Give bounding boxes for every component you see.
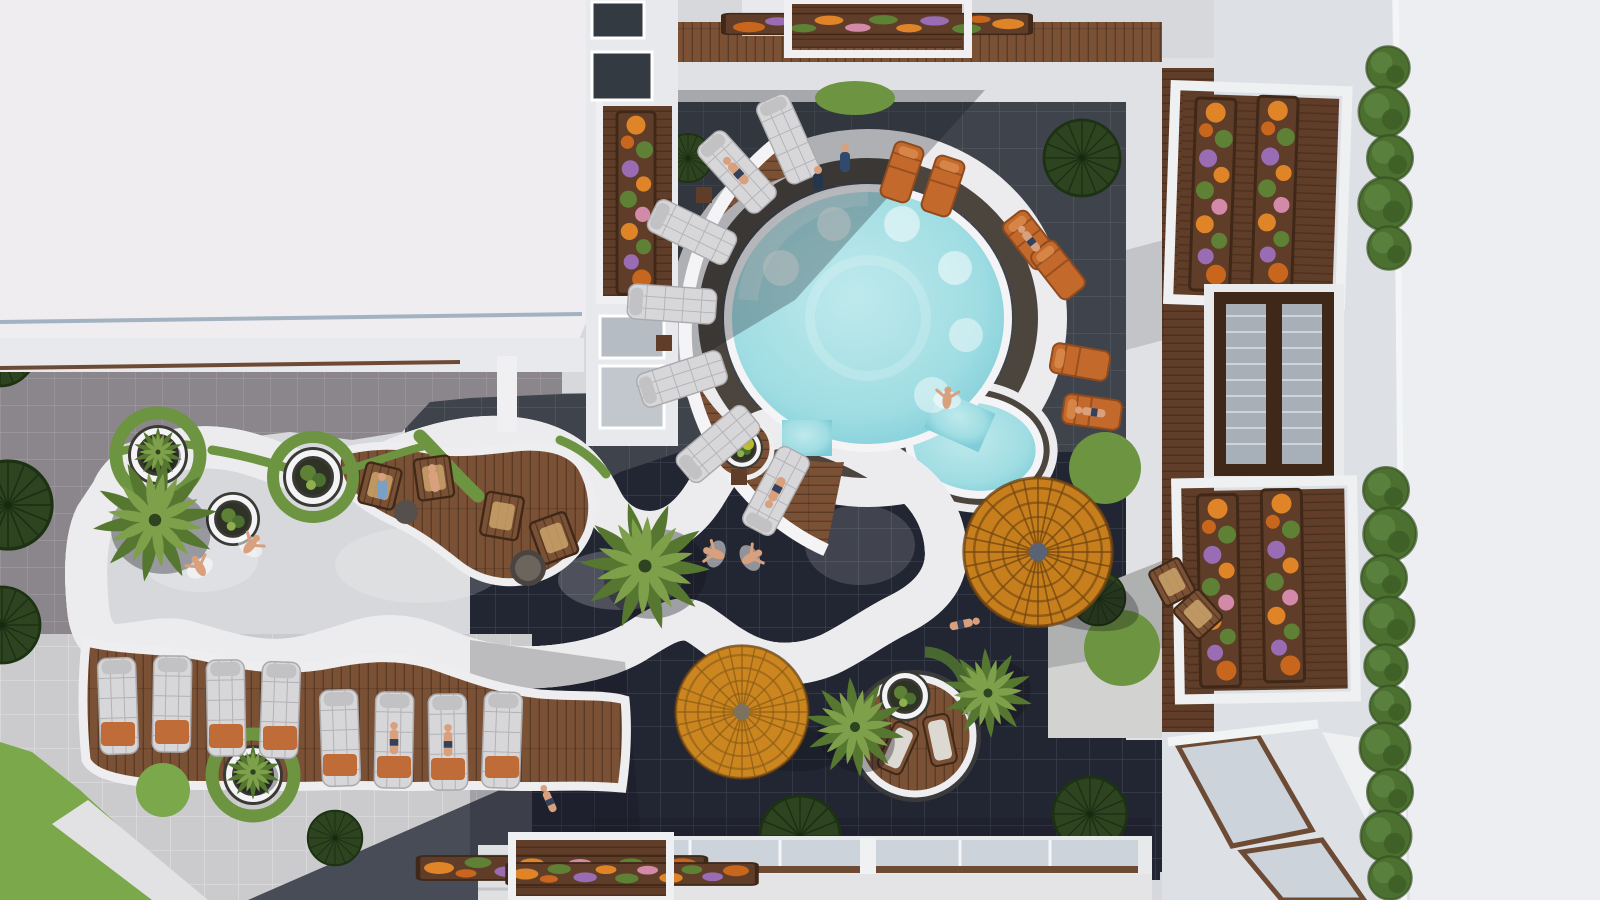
roof-slab <box>0 0 590 356</box>
bottom-structures <box>418 836 1152 900</box>
round-table <box>394 500 418 524</box>
umbrella-east <box>964 478 1112 626</box>
sunbather <box>390 722 399 754</box>
person-crouching <box>813 166 823 190</box>
pillar <box>497 356 517 432</box>
balcony-north <box>1168 85 1347 305</box>
sunbather <box>444 724 453 756</box>
person-standing <box>840 144 850 172</box>
glass-balcony-se <box>1162 724 1392 900</box>
scene-canvas <box>0 0 1600 900</box>
umbrella-south <box>676 646 808 778</box>
aerial-resort-rendering <box>0 0 1600 900</box>
right-roof-slab <box>1392 0 1600 900</box>
grass-semicircle-top <box>815 81 895 115</box>
side-table <box>696 187 712 203</box>
grass-circle-sw <box>136 763 190 817</box>
right-building <box>1162 0 1600 900</box>
round-planter-n <box>273 437 353 517</box>
person-sitting-chair <box>377 473 387 499</box>
window-bay <box>1204 284 1344 484</box>
table-top <box>515 555 541 581</box>
balcony-south <box>1176 480 1356 699</box>
side-table <box>731 469 747 485</box>
dark-tree <box>308 811 362 865</box>
window-pale <box>600 316 664 358</box>
side-table <box>656 335 672 351</box>
wood-chair <box>479 491 524 541</box>
dark-tree <box>1044 120 1120 196</box>
